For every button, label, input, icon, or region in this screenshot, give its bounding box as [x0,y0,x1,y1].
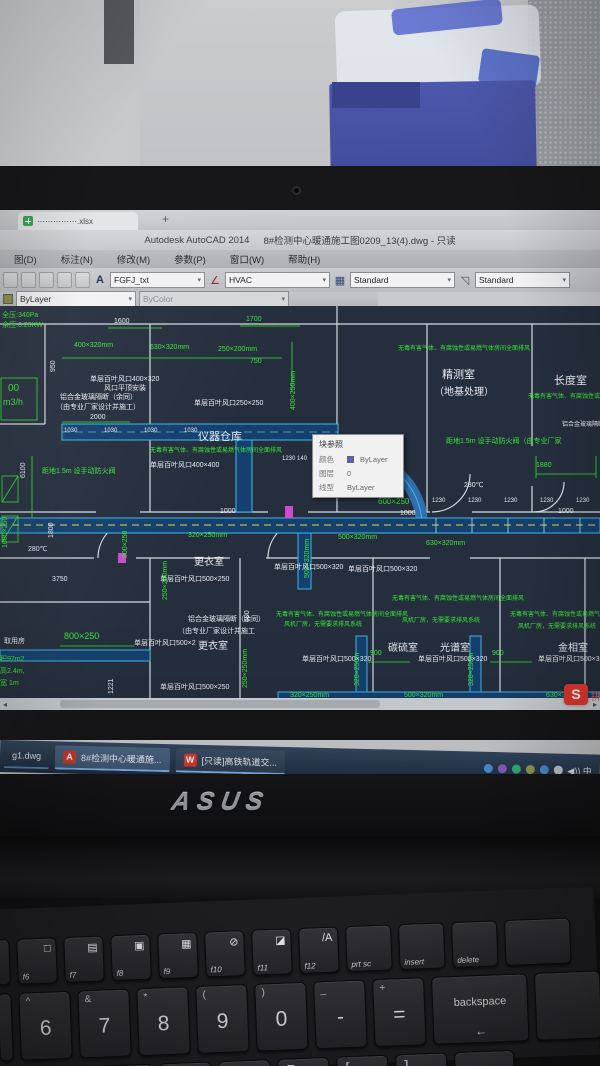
key-8[interactable]: *8 [136,986,191,1056]
cad-annotation: 铝合金玻璃隔断（余同） [188,616,265,623]
key-partial[interactable] [0,993,14,1061]
key-backspace[interactable]: backspace← [431,973,530,1045]
tooltip-row-value: ByLayer [360,455,388,464]
key-I[interactable]: I [159,1061,213,1066]
key-main-label: P [286,1062,297,1066]
key-label: insert [404,957,424,967]
cad-annotation: 1230 [576,498,589,504]
cad-annotation: m3/h [3,398,23,407]
cad-annotation: 单层百叶风口250×250 [194,400,263,407]
key-shift-label: ^ [25,996,30,1007]
taskbar-item-label: g1.dwg [12,750,41,761]
asus-logo: ASUS [169,788,272,817]
cad-annotation: 950 [50,360,57,372]
key-main-label: 7 [98,1014,111,1038]
cad-annotation: 250×200mm [218,346,257,353]
cad-annotation: 1000×250 [2,517,9,548]
tooltip-row: 颜色ByLayer [319,454,397,465]
key-f12[interactable]: f12/A [298,926,340,974]
cad-annotation: 单层百叶风口500×250 [160,684,229,691]
laptop-bezel-bottom [0,774,600,836]
key-0[interactable]: )0 [254,982,309,1052]
key-label: prt sc [351,959,371,969]
toolbar-button-3[interactable] [39,272,54,288]
cad-annotation: 取用房 [4,638,25,645]
cad-annotation: 无毒有害气体、有腐蚀性或易燃气体房间全面排风 [510,612,600,618]
cad-annotation: 无毒有害气体、有腐蚀性或易燃气体房间全面排风 [392,596,524,602]
color-swatch-icon [347,456,354,463]
autocad-titlebar: Autodesk AutoCAD 2014 8#检测中心暖通施工图0209_13… [0,230,600,250]
key-shift-label: * [143,992,147,1003]
cad-annotation: 无毒有害气体、有腐蚀性或易燃 [528,394,600,400]
backspace-arrow-icon: ← [475,1023,488,1037]
cad-annotation: 1000 [558,508,574,515]
taskbar-item-2[interactable]: A8#检测中心暖通施... [55,745,170,772]
chevron-down-icon: ▾ [447,276,451,284]
cad-annotation: 1230 [540,498,553,504]
laptop-hinge [0,836,600,898]
key-[[interactable]: [ [336,1055,390,1066]
cad-annotation: 更衣室 [194,558,224,568]
cad-annotation: 280℃ [464,482,484,489]
chevron-down-icon: ▾ [128,295,132,303]
cad-annotation: 1700 [246,316,262,323]
cad-annotation: 单层百叶风口500×3 [538,656,600,663]
key-9[interactable]: (9 [195,984,250,1054]
styles-toolbar: A FGFJ_txt▾ ∠ HVAC▾ ▦ Standard▾ ◹ Standa… [0,268,600,292]
tooltip-row-label: 图层 [319,468,341,479]
cad-annotation: 铝合金玻璃隔断（余同） [60,394,137,401]
dim-style-icon: ∠ [208,274,222,287]
taskbar-item-label: [只读]高铁轨道交... [201,753,277,768]
cad-annotation: 900 [492,650,504,657]
blue-file-box-flap [332,82,420,108]
app-title: Autodesk AutoCAD 2014 [144,235,249,246]
command-line-strip [0,710,600,740]
key-glyph-icon: /A [322,932,333,944]
rollover-tooltip: 块参照 颜色ByLayer图层0线型ByLayer [312,434,404,498]
cad-annotation: 320×250mm [188,532,227,539]
key-shift-label: ( [202,990,206,1001]
key-glyph-icon: ⊘ [229,935,239,948]
sogou-input-icon[interactable]: S [564,684,588,705]
key-shift-label: _ [320,985,326,996]
cad-annotation: 320×250m [354,653,361,686]
key-P[interactable]: P [277,1057,331,1066]
cad-annotation: 碳硫室 [388,644,418,654]
key-label: f7 [69,971,76,980]
tooltip-row-label: 颜色 [319,454,341,465]
cad-annotation: 精测室 [442,370,475,381]
cad-annotation: 余压:0.28KW [2,322,43,329]
key-shift-label: & [84,994,91,1005]
key-main-label: ] [404,1058,409,1066]
menu-item-1[interactable]: 图(D) [2,252,49,266]
key-label: f9 [163,967,170,976]
chevron-down-icon: ▾ [281,295,285,303]
cad-annotation: 6100 [20,462,27,478]
cad-annotation: 1230 [432,498,445,504]
key-partial[interactable] [504,918,572,966]
text-style-combo[interactable]: FGFJ_txt▾ [110,272,205,288]
cad-annotation: 1030 [64,428,77,434]
key-f6[interactable]: f6□ [16,937,58,985]
key-partial[interactable] [534,970,600,1040]
cad-annotation: 无毒有害气体、有腐蚀性或易燃气体房间全面排风 [150,448,282,454]
cad-annotation: 1030 [184,428,197,434]
menu-item-4[interactable]: 参数(P) [162,252,218,266]
toolbar-button-1[interactable] [3,272,18,288]
chevron-down-icon: ▾ [197,276,201,284]
cad-annotation: 800×250 [122,531,129,558]
table-style-icon: ▦ [333,274,347,287]
key-glyph-icon: □ [44,942,51,954]
cad-annotation: 1600 [114,318,130,325]
tray-icon[interactable] [553,765,562,774]
cad-annotation: 单层百叶风口500×320 [302,656,371,663]
key-f7[interactable]: f7▤ [63,935,105,983]
key-f9[interactable]: f9▦ [157,932,199,980]
key-glyph-icon: ◪ [275,933,286,946]
background-object [104,0,134,64]
toolbar-button-2[interactable] [21,272,36,288]
wps-icon: W [183,753,196,766]
cad-annotation: 无毒有害气体、有腐蚀性或易燃气体房间全面排风 [398,346,530,352]
cad-annotation: 1230 [504,498,517,504]
cad-annotation: 3750 [52,576,68,583]
cad-annotation: 风机厂房，无需要求排风系统 [402,618,480,624]
scrollbar-thumb[interactable] [60,700,380,708]
tooltip-row-label: 线型 [319,482,341,493]
cad-annotation: 距地1.5m 设手动防火阀 [42,468,116,475]
key-f11[interactable]: f11◪ [251,928,293,976]
tray-icon[interactable] [497,764,506,773]
cad-annotation: 280℃ [28,546,48,553]
cad-annotation: 400×250mm [290,371,297,410]
key--[interactable]: _- [313,979,368,1049]
cad-annotation: 1230 140 [282,456,307,462]
cad-annotation: 更衣室 [198,642,228,652]
cad-annotation: 320×250m [468,653,475,686]
spreadsheet-tab-label: ⋯⋯⋯⋯⋯.xlsx [37,217,93,226]
cad-drawing-canvas[interactable]: 全压:340Pa余压:0.28KW16001700400×320mm630×32… [0,306,600,710]
cad-annotation: 250×250mm [162,561,169,600]
cad-annotation: 2000 [90,414,106,421]
menu-item-6[interactable]: 帮助(H) [276,252,332,266]
cad-annotation: 750 [250,358,262,365]
tray-icon[interactable] [483,763,492,772]
cad-annotation: 1230 [468,498,481,504]
tooltip-row: 线型ByLayer [319,482,397,493]
key-shift-label: + [379,983,385,994]
cad-annotation: 1800 [48,522,55,538]
menu-item-3[interactable]: 修改(M) [105,252,162,266]
key-main-label: 8 [157,1012,170,1036]
key-label: f10 [210,965,221,974]
key-label: delete [457,955,479,965]
properties-toolbar: ByLayer▾ ByColor▾ [0,292,378,306]
cad-annotation: 全压:340Pa [2,312,38,319]
cad-annotation: 1030 [144,428,157,434]
cad-annotation: 1030 [104,428,117,434]
cad-annotation: 金相室 [558,644,588,654]
layer-color-swatch[interactable] [3,294,13,304]
cad-annotation: 风机厂房，无需要求排风系统 [284,622,362,628]
chevron-down-icon: ▾ [322,276,326,284]
tooltip-row-value: ByLayer [347,483,375,492]
dim-style-combo[interactable]: HVAC▾ [225,272,330,288]
cad-annotation: （地基处理） [434,388,494,398]
key-6[interactable]: ^6 [18,991,73,1061]
linetype-combo[interactable]: ByColor▾ [139,291,289,307]
keyboard-deck: f6□f7▤f8▣f9▦f10⊘f11◪f12/Aprt scinsertdel… [0,887,600,1066]
cad-annotation: 光谱室 [440,644,470,654]
cad-annotation: （由专业厂家设计并施工 [178,628,255,635]
sogou-input-extra: 拼 [591,688,600,703]
cad-annotation: 仪器仓库 [198,432,242,443]
cad-annotation: 风机厂房，无需要求排风系统 [518,624,596,630]
new-tab-button[interactable]: + [162,212,169,226]
webcam [292,186,301,195]
key-partial[interactable] [0,939,11,986]
cad-annotation: 铝合金玻璃隔断（ [562,422,600,428]
key-glyph-icon: ▤ [87,941,98,954]
menu-item-2[interactable]: 标注(N) [49,252,105,266]
key-label: f11 [257,963,268,972]
cad-annotation: 500 [244,610,251,622]
photo-of-laptop: ⋯⋯⋯⋯⋯.xlsx + Autodesk AutoCAD 2014 8#检测中… [0,0,600,1066]
key-O[interactable]: O [218,1059,272,1066]
tray-icon[interactable] [511,764,520,773]
key-glyph-icon: ▣ [134,939,145,952]
key-][interactable]: ] [395,1052,449,1066]
cad-annotation: 1000 [400,510,416,517]
key-main-label: [ [345,1060,350,1066]
cad-annotation: 单层百叶风口400×320 [90,376,159,383]
table-style-combo[interactable]: Standard▾ [350,272,455,288]
toolbar-button-4[interactable] [57,272,72,288]
cad-annotation: 500×320mm [304,539,311,578]
key-main-label: 0 [275,1007,288,1031]
key-insert[interactable]: insert [398,922,446,970]
key-=[interactable]: += [372,977,427,1047]
cad-annotation: 900 [370,650,382,657]
cad-annotation: 长度室 [554,376,587,387]
tooltip-row: 图层0 [319,468,397,479]
taskbar-item-1[interactable]: g1.dwg [4,744,50,769]
cad-annotation: 600×250 [378,498,409,506]
key-label: f6 [23,972,30,981]
toolbar-button-5[interactable] [75,272,90,288]
mleader-style-combo[interactable]: Standard▾ [475,272,570,288]
key-main-label: - [336,1005,344,1029]
cad-annotation: 单层百叶风口500×2 [134,640,196,647]
cad-annotation: 1880 [536,462,552,469]
key-partial[interactable] [454,1050,516,1066]
laptop-screen: ⋯⋯⋯⋯⋯.xlsx + Autodesk AutoCAD 2014 8#检测中… [0,210,600,774]
color-combo[interactable]: ByLayer▾ [16,291,136,307]
key-prt-sc[interactable]: prt sc [345,924,393,972]
chevron-down-icon: ▾ [562,276,566,284]
key-glyph-icon: ▦ [181,937,192,950]
tray-icon[interactable] [539,765,548,774]
autocad-icon: A [63,750,76,763]
cad-annotation: 250×250mm [242,649,249,688]
menubar: 图(D)标注(N)修改(M)参数(P)窗口(W)帮助(H) [0,250,600,268]
key-main-label: backspace [453,995,506,1009]
key-main-label: = [393,1003,406,1027]
cad-annotation: 单层百叶风口500×320 [418,656,487,663]
cad-annotation: 宽 1m [0,680,19,687]
cad-annotation: 630×320mm [426,540,465,547]
menu-item-5[interactable]: 窗口(W) [218,252,276,266]
cad-annotation: 800×250 [64,632,99,641]
taskbar-item-label: 8#检测中心暖通施... [81,750,162,765]
cad-annotation: 1221 [108,678,115,694]
taskbar-item-3[interactable]: W[只读]高铁轨道交... [175,748,285,775]
cad-annotation: 高2.4m, [0,668,25,675]
key-f8[interactable]: f8▣ [110,934,152,982]
cad-annotation: 1000 [220,508,236,515]
cad-annotation: 单层百叶风口500×320 [348,566,417,573]
cad-annotation: 无毒有害气体、有腐蚀性或易燃气体房间全面排风 [276,612,408,618]
key-main-label: 9 [216,1009,229,1033]
cad-annotation: （由专业厂家设计并施工） [56,404,140,411]
key-label: f12 [304,961,315,970]
cad-annotation: 单层百叶风口500×250 [160,576,229,583]
tooltip-title: 块参照 [319,439,397,450]
cad-annotation: 500×320mm [338,534,377,541]
cad-annotation: 630×320mm [150,344,189,351]
mleader-style-icon: ◹ [458,274,472,287]
document-title: 8#检测中心暖通施工图0209_13(4).dwg - 只读 [263,233,455,247]
cad-annotation: 00 [8,384,19,394]
key-label: f8 [116,969,123,978]
tooltip-row-value: 0 [347,469,351,478]
cad-annotation: 单层百叶风口400×400 [150,462,219,469]
cad-annotation: 积97m2 [0,656,25,663]
cad-annotation: 400×320mm [74,342,113,349]
cad-annotation: 风口平顶安装 [104,385,146,392]
key-f10[interactable]: f10⊘ [204,930,246,978]
tray-icon[interactable] [525,764,534,773]
key-main-label: 6 [39,1016,52,1040]
number-key-row: ^6&7*8(9)0_-+=backspace← [0,970,600,1061]
key-delete[interactable]: delete [451,920,499,968]
key-7[interactable]: &7 [77,989,132,1059]
spreadsheet-tab[interactable]: ⋯⋯⋯⋯⋯.xlsx [18,212,138,230]
cad-annotation: 距地1.5m 设手动防火阀（由专业厂家 [446,438,562,445]
background-app-tabbar: ⋯⋯⋯⋯⋯.xlsx + [0,210,600,230]
text-style-icon: A [93,274,107,286]
cad-annotation: 单层百叶风口500×320 [274,564,343,571]
key-shift-label: ) [261,987,265,998]
scroll-left-icon[interactable]: ◂ [3,700,7,709]
spreadsheet-icon [23,216,33,226]
